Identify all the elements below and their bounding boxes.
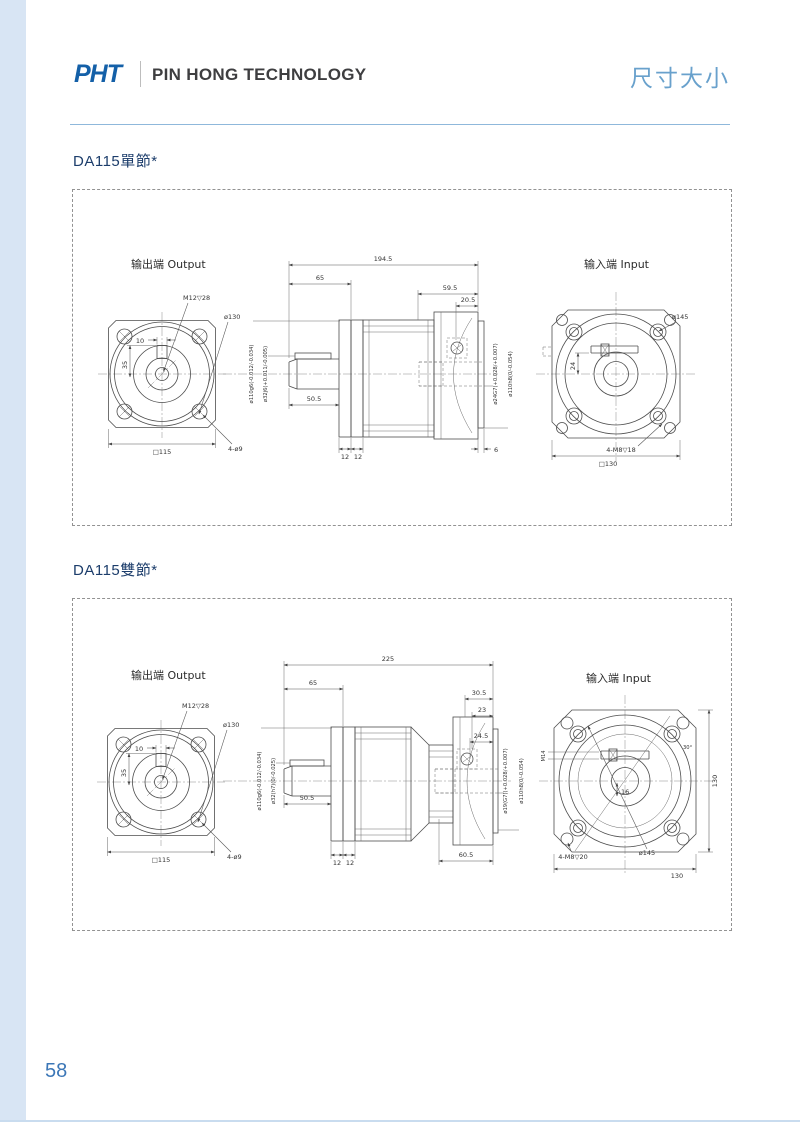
- dim-shaft-dia: ø32(h7)(0/-0.025): [271, 758, 277, 804]
- section-title-da115-single: DA115單節*: [73, 150, 158, 171]
- drawing-box-da115-double: 输出端 Output 10 35 M12▽28: [72, 598, 732, 931]
- dim-shaft-dia: ø32j6(+0.011/-0.005): [263, 346, 269, 402]
- logo-divider: [140, 61, 141, 87]
- output-view-double: 输出端 Output 10 35 M12▽28: [97, 668, 242, 864]
- left-accent-strip: [0, 0, 26, 1122]
- dim-ring2: 12: [354, 453, 362, 461]
- company-logo: PHT: [74, 60, 121, 89]
- catalog-page: PHT PIN HONG TECHNOLOGY 尺寸大小 DA115單節* 输出…: [0, 0, 800, 1122]
- dim-mount-holes: 4-M8▽20: [558, 853, 588, 861]
- input-view-single: 输入端 Input: [536, 257, 696, 468]
- dim-rear-depth: 30.5: [472, 689, 486, 697]
- input-view-double: 输入端 Input 30° M: [539, 671, 719, 880]
- dim-mount-holes: 4-M8▽18: [606, 446, 636, 454]
- dim-keyway-offset: 35: [121, 361, 129, 369]
- dim-output-tap: M12▽28: [183, 294, 210, 302]
- side-view-single: 194.5 65 59.5 20.5 50.5 12 12 6 ø: [223, 255, 514, 461]
- dim-ring1: 12: [333, 859, 341, 867]
- drawing-da115-single: 输出端 Output 10 35: [73, 190, 729, 523]
- dim-keyway-width: 10: [136, 337, 144, 345]
- dim-shaft-length: 50.5: [300, 794, 314, 802]
- dim-ring2: 12: [346, 859, 354, 867]
- dim-shaft-length: 50.5: [307, 395, 321, 403]
- dim-slot-offset: 16: [621, 788, 629, 796]
- page-title: 尺寸大小: [630, 59, 730, 93]
- dim-output-square: □115: [153, 448, 172, 456]
- dim-output-tap: M12▽28: [182, 702, 209, 710]
- output-view-single: 输出端 Output 10 35: [98, 257, 243, 456]
- dim-output-pilot: ø130: [223, 721, 239, 729]
- dim-pilot-dia: ø110g6(-0.012/-0.034): [249, 345, 255, 404]
- header-rule: [70, 124, 730, 125]
- dim-keyway-offset: 35: [120, 769, 128, 777]
- dim-ring1: 12: [341, 453, 349, 461]
- dim-overall-length: 225: [382, 655, 394, 663]
- dim-input-bcd: ø145: [639, 849, 655, 857]
- section-title-da115-double: DA115雙節*: [73, 559, 158, 580]
- output-view-label: 输出端 Output: [131, 668, 206, 682]
- dim-input-bore: ø19(G7)(+0.028/+0.007): [503, 748, 509, 813]
- dim-keyway-width: 10: [135, 745, 143, 753]
- dim-output-square: □115: [152, 856, 171, 864]
- dim-step: 6: [494, 446, 498, 454]
- dim-output-pilot: ø130: [224, 313, 240, 321]
- dim-overall-length: 194.5: [374, 255, 393, 263]
- dim-slot-offset: 24: [569, 362, 577, 370]
- dim-corner-holes: 4-ø9: [228, 445, 243, 453]
- dim-clamp: M14: [541, 750, 547, 762]
- dim-rear-total: 60.5: [459, 851, 473, 859]
- dim-input-square: □130: [599, 460, 618, 468]
- dim-corner-holes: 4-ø9: [227, 853, 242, 861]
- drawing-box-da115-single: 输出端 Output 10 35: [72, 189, 732, 526]
- output-view-label: 输出端 Output: [131, 257, 206, 271]
- dim-rear-inner: 20.5: [461, 296, 475, 304]
- dim-front-depth: 65: [316, 274, 324, 282]
- dim-input-pilot: ø110h8(0/-0.054): [519, 758, 525, 803]
- dim-front-depth: 65: [309, 679, 317, 687]
- side-view-double: 225 65 30.5 23 24.5 50.5 12 12 60.5: [223, 655, 525, 867]
- page-number: 58: [45, 1060, 67, 1083]
- dim-angle: 30°: [683, 745, 693, 751]
- dim-input-bore: ø24G7(+0.028/+0.007): [493, 343, 499, 404]
- dim-rear-mid: 23: [478, 706, 486, 714]
- dim-input-height: 130: [711, 775, 719, 787]
- dim-input-width: 130: [671, 872, 683, 880]
- drawing-da115-double: 输出端 Output 10 35 M12▽28: [73, 599, 729, 928]
- dim-input-bcd: ø145: [672, 313, 688, 321]
- dim-rear-inner: 24.5: [474, 732, 488, 740]
- input-view-label: 输入端 Input: [584, 257, 650, 271]
- dim-rear-depth: 59.5: [443, 284, 457, 292]
- dim-pilot-dia: ø110g6(-0.012/-0.034): [257, 752, 263, 811]
- dim-input-pilot: ø110h8(0/-0.054): [508, 351, 514, 396]
- input-view-label: 输入端 Input: [586, 671, 652, 685]
- company-name: PIN HONG TECHNOLOGY: [152, 65, 366, 85]
